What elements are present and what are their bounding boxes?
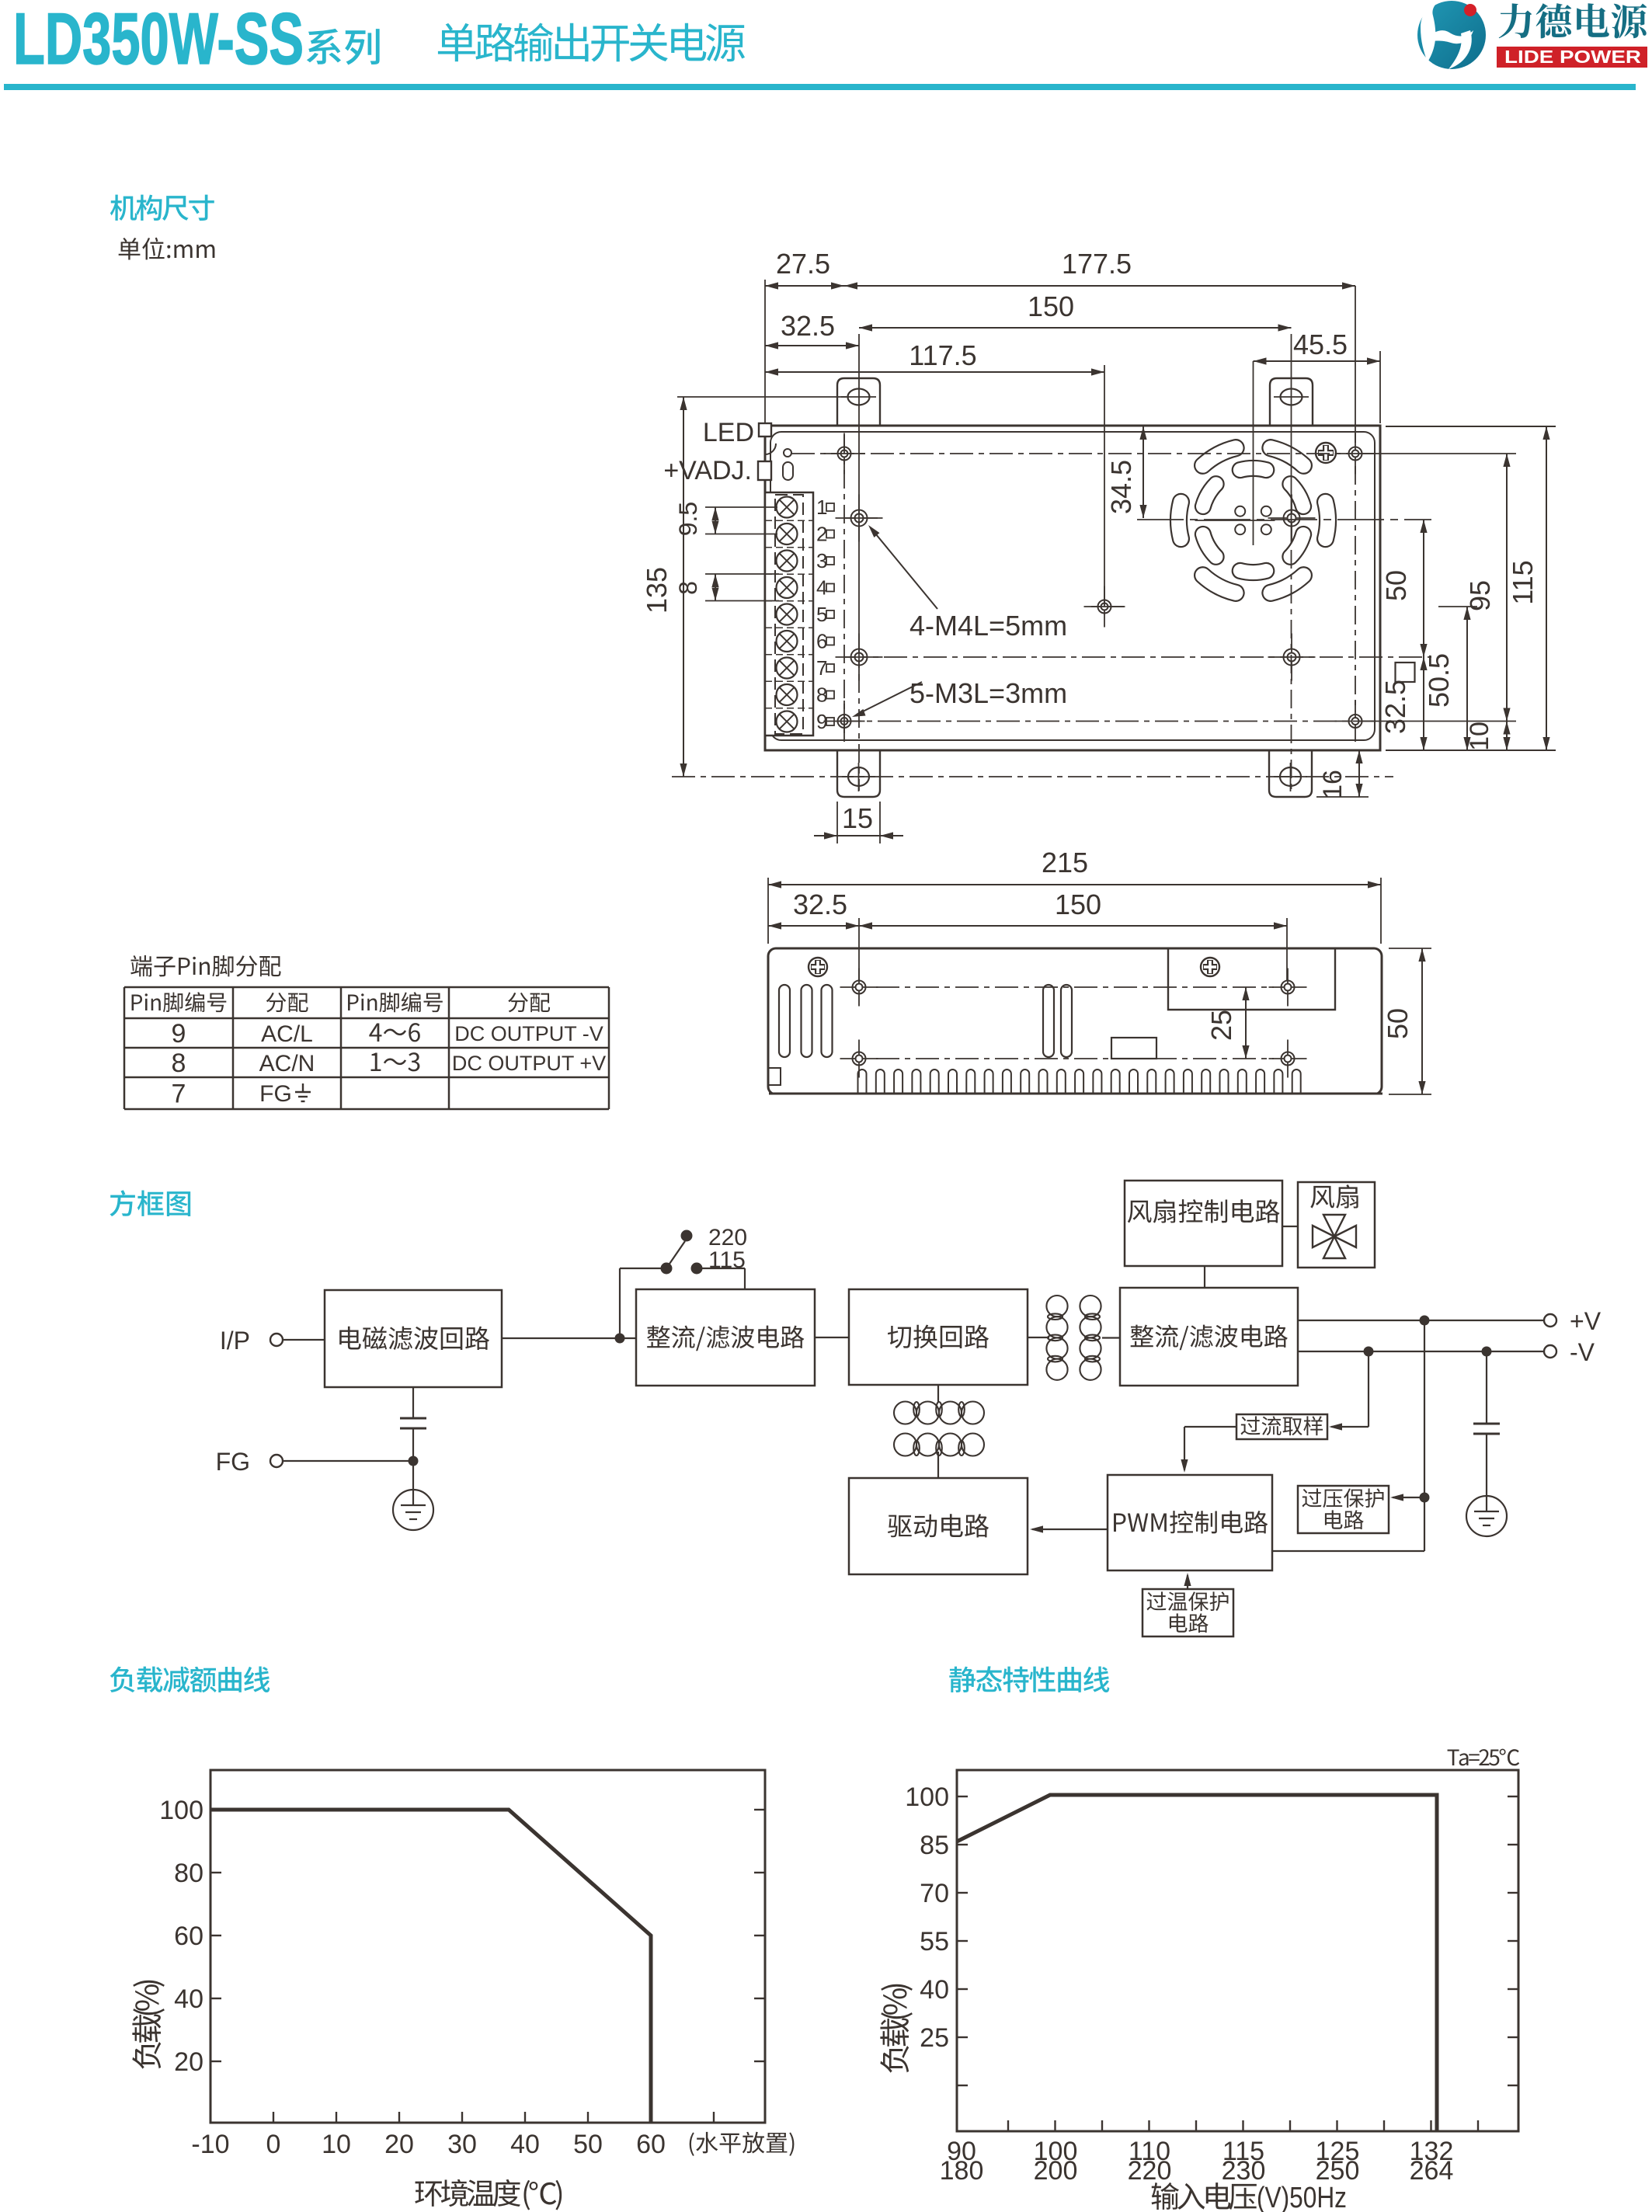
svg-text:AC/N: AC/N (259, 1051, 315, 1076)
svg-text:100: 100 (905, 1782, 949, 1812)
svg-text:32.5: 32.5 (793, 889, 847, 920)
svg-text:LED: LED (703, 418, 754, 447)
svg-text:FG: FG (259, 1081, 292, 1107)
svg-text:40: 40 (510, 2130, 540, 2159)
svg-text:25: 25 (920, 2023, 949, 2053)
svg-text:150: 150 (1028, 290, 1074, 322)
svg-text:DC OUTPUT +V: DC OUTPUT +V (452, 1052, 606, 1075)
svg-text:45.5: 45.5 (1293, 329, 1348, 360)
svg-text:100: 100 (159, 1796, 203, 1825)
svg-text:50.5: 50.5 (1423, 653, 1455, 708)
svg-text:50: 50 (1380, 570, 1412, 601)
svg-text:16: 16 (1318, 770, 1348, 799)
svg-text:4-M4L=5mm: 4-M4L=5mm (909, 610, 1067, 642)
svg-text:95: 95 (1464, 580, 1496, 611)
svg-text:115: 115 (708, 1247, 746, 1273)
svg-text:10: 10 (1465, 722, 1494, 751)
svg-text:27.5: 27.5 (776, 248, 830, 280)
svg-text:(V)50Hz: (V)50Hz (1257, 2182, 1347, 2212)
svg-text:-V: -V (1570, 1338, 1595, 1366)
svg-text:8: 8 (172, 1049, 186, 1078)
svg-text:50: 50 (1382, 1008, 1414, 1039)
svg-text:220: 220 (1128, 2156, 1172, 2186)
svg-text:20: 20 (384, 2130, 414, 2159)
svg-text:200: 200 (1034, 2156, 1078, 2186)
svg-text:DC OUTPUT -V: DC OUTPUT -V (454, 1022, 603, 1045)
svg-text:10: 10 (322, 2130, 351, 2159)
svg-text:215: 215 (1042, 847, 1088, 878)
svg-text:177.5: 177.5 (1062, 248, 1132, 280)
svg-text:40: 40 (174, 1984, 203, 2014)
svg-text:34.5: 34.5 (1105, 460, 1137, 514)
svg-text:5-M3L=3mm: 5-M3L=3mm (909, 677, 1067, 709)
svg-text:80: 80 (174, 1859, 203, 1888)
svg-text:AC/L: AC/L (261, 1021, 313, 1047)
svg-text:7: 7 (172, 1080, 186, 1109)
svg-text:15: 15 (842, 802, 873, 834)
svg-text:I/P: I/P (220, 1327, 250, 1355)
svg-text:32.5: 32.5 (1379, 680, 1411, 734)
svg-text:135: 135 (641, 567, 673, 614)
svg-text:60: 60 (636, 2130, 666, 2159)
svg-text:70: 70 (920, 1879, 949, 1908)
svg-text:+VADJ.: +VADJ. (663, 456, 752, 485)
svg-text:20: 20 (174, 2047, 203, 2077)
svg-text:-10: -10 (191, 2130, 229, 2159)
svg-text:+V: +V (1570, 1307, 1602, 1335)
svg-text:40: 40 (920, 1975, 949, 2005)
svg-text:60: 60 (174, 1922, 203, 1951)
svg-text:32.5: 32.5 (781, 310, 835, 342)
svg-text:9: 9 (172, 1019, 186, 1049)
svg-text:180: 180 (940, 2156, 984, 2186)
svg-text:117.5: 117.5 (909, 339, 976, 371)
svg-text:8: 8 (674, 581, 702, 595)
svg-text:9.5: 9.5 (674, 502, 702, 536)
svg-text:LD350W-SS: LD350W-SS (13, 0, 304, 79)
svg-text:0: 0 (266, 2130, 281, 2159)
svg-text:FG: FG (216, 1448, 250, 1476)
svg-text:264: 264 (1410, 2156, 1454, 2186)
svg-text:30: 30 (447, 2130, 477, 2159)
svg-text:25: 25 (1205, 1010, 1237, 1041)
svg-text:50: 50 (573, 2130, 603, 2159)
svg-text:150: 150 (1055, 889, 1101, 920)
svg-text:115: 115 (1507, 560, 1539, 604)
svg-text:85: 85 (920, 1831, 949, 1860)
svg-text:55: 55 (920, 1927, 949, 1956)
svg-text:LIDE POWER: LIDE POWER (1504, 47, 1641, 67)
